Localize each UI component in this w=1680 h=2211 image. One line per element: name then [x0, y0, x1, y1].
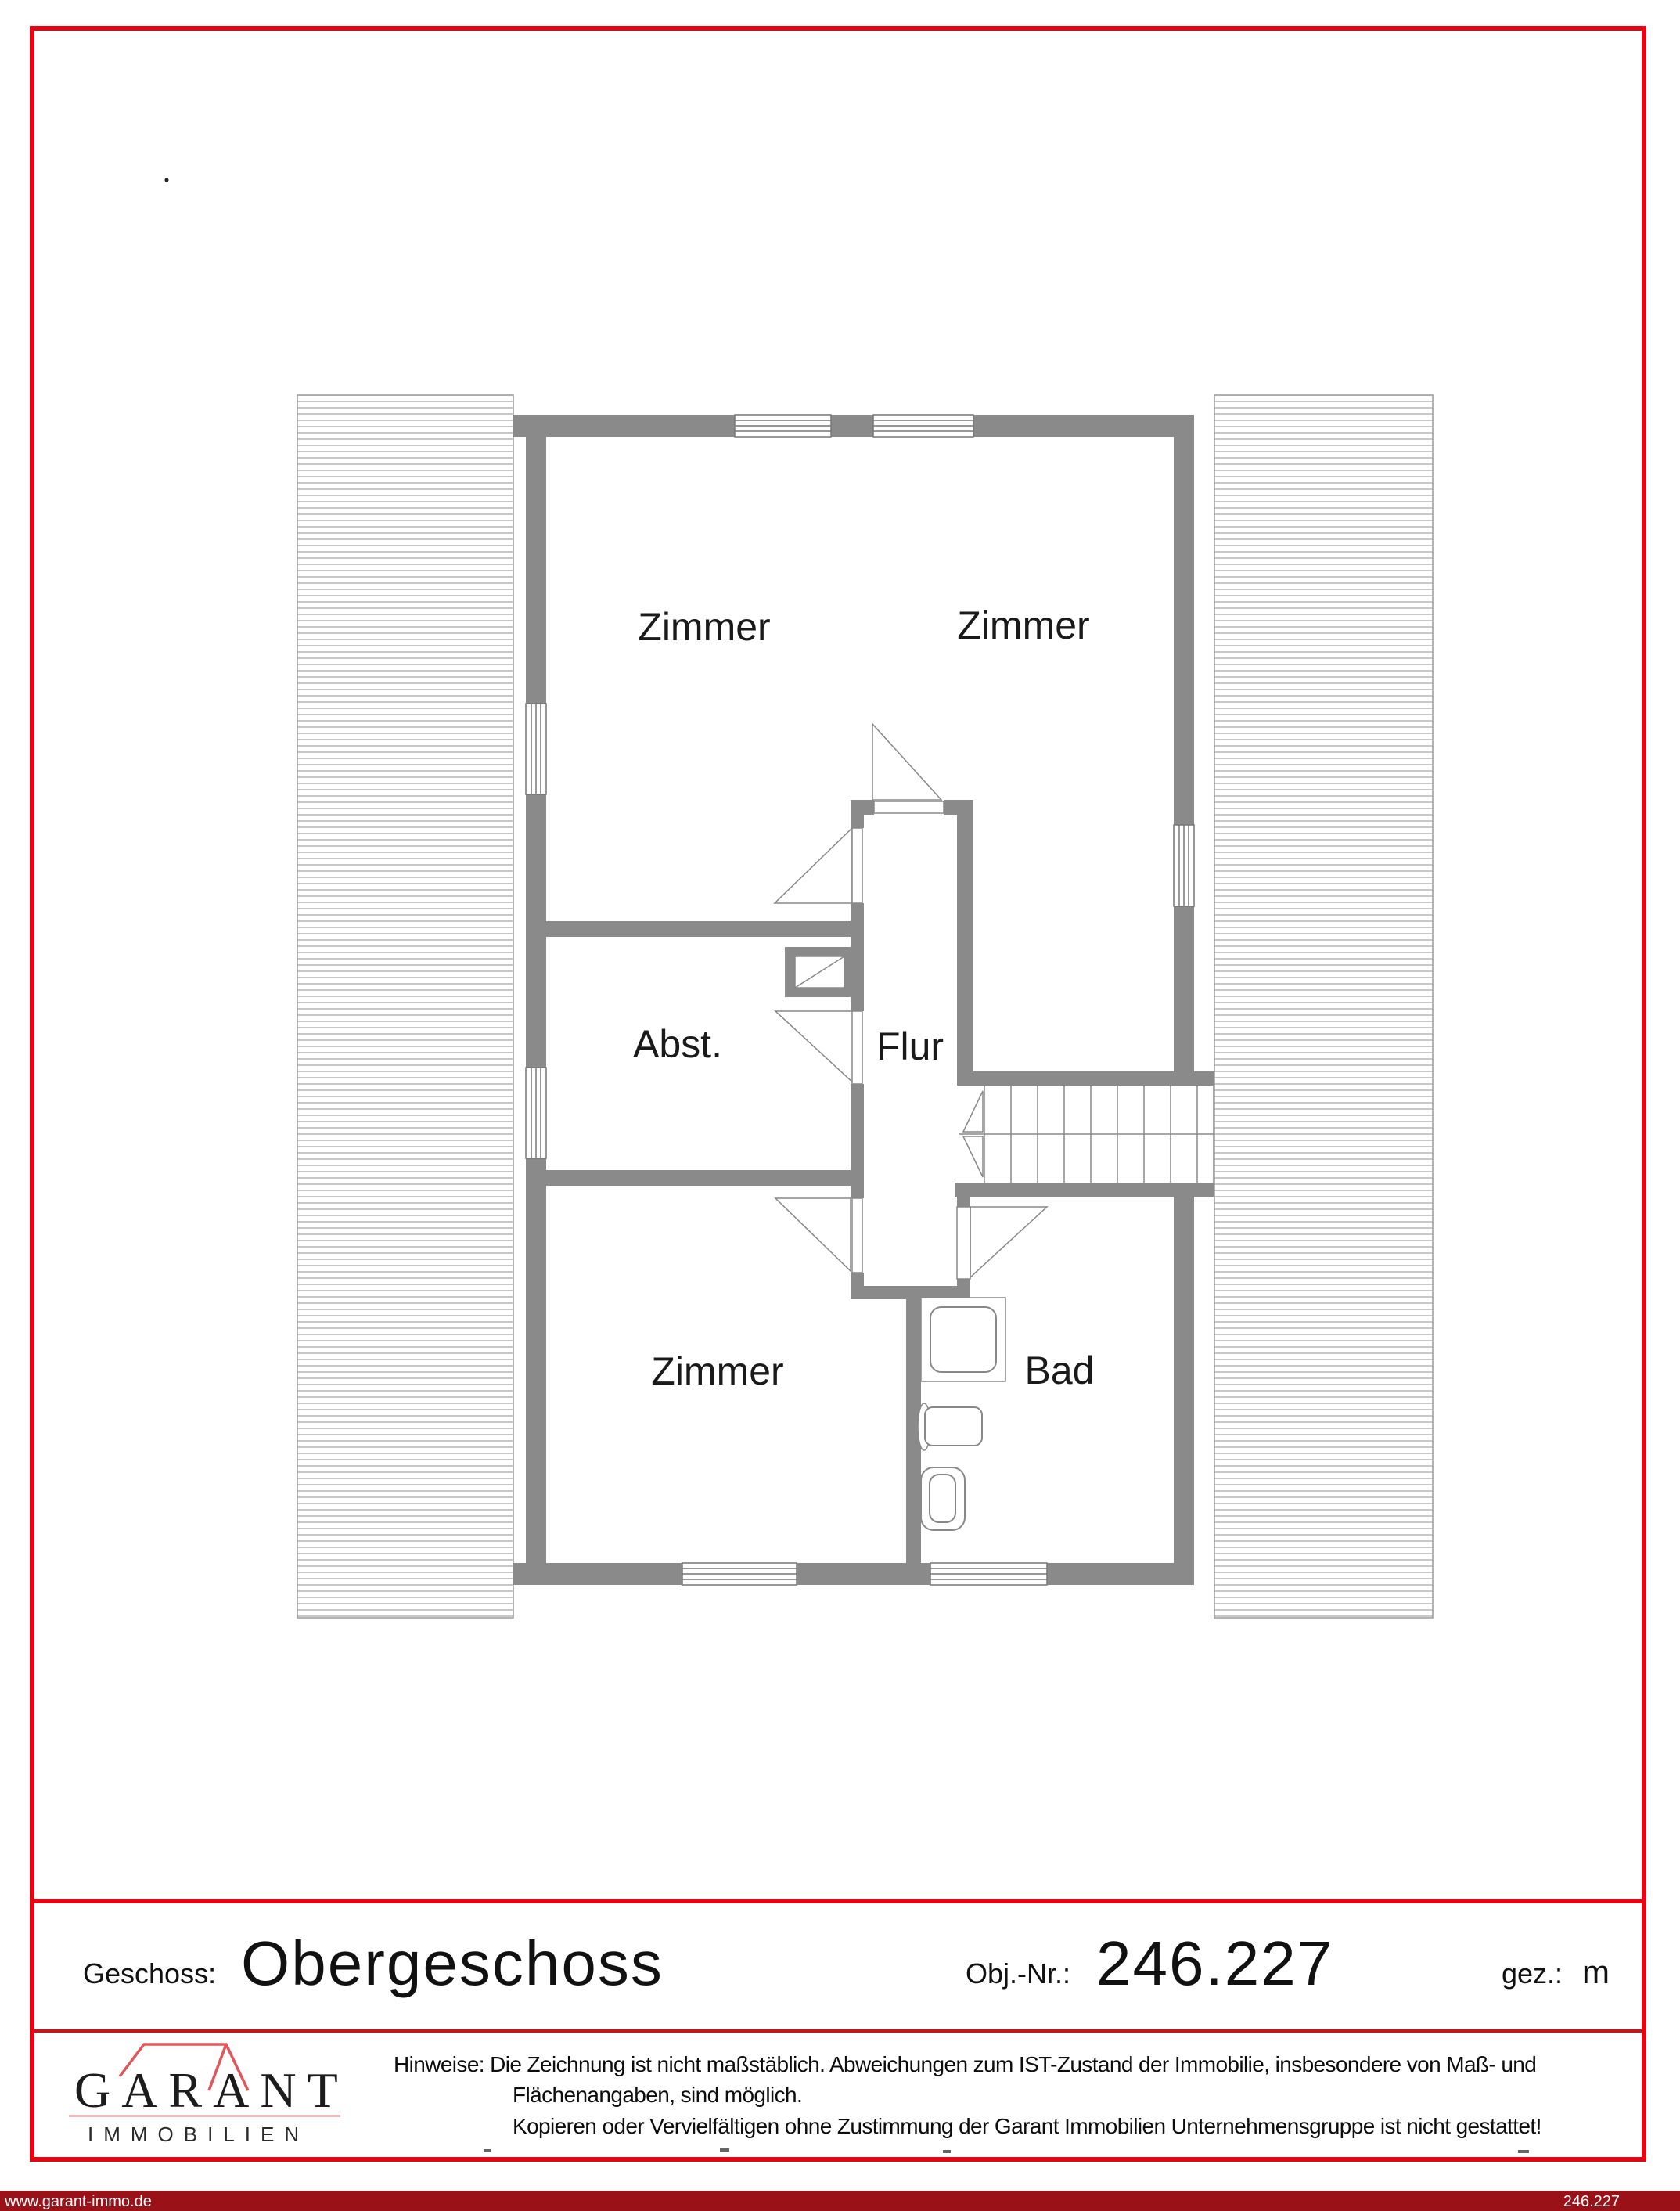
stairs-symbol [959, 1086, 1214, 1183]
floor-plan-drawing: Zimmer Zimmer Abst. Flur Zimmer Bad [0, 0, 1680, 2211]
website-url-text: www.garant-immo.de [5, 2193, 152, 2211]
footer-divider-line-bottom [34, 2029, 1644, 2033]
roof-hatch-areas [297, 395, 1433, 1618]
gez-label: gez.: [1502, 1960, 1563, 1988]
gez-value: m [1582, 1956, 1610, 1989]
wall-right-upper [1174, 415, 1194, 1086]
bad-door-stub-lower [957, 1279, 970, 1299]
geschoss-label: Geschoss: [83, 1960, 216, 1988]
stairs-wall-bottom [955, 1183, 1214, 1197]
stairs-wall-top [957, 1071, 1214, 1086]
footer-divider-line-top [34, 1899, 1644, 1903]
obj-nr-label: Obj.-Nr.: [966, 1960, 1070, 1988]
sink-symbol [925, 1407, 982, 1446]
shower-tray [930, 1307, 996, 1372]
roof-hatch-right [1214, 395, 1433, 1618]
interior-walls [546, 800, 1214, 1563]
stairs-turn-upper [963, 1091, 983, 1132]
toilet-bowl [930, 1475, 955, 1522]
object-number-text: 246.227 [1563, 2193, 1620, 2211]
flur-wall-right [957, 800, 973, 1086]
window-right-1 [1174, 825, 1194, 906]
room-label-zimmer-top-right: Zimmer [957, 603, 1089, 647]
flur-wall-top-seg1 [851, 800, 874, 815]
room-label-zimmer-bottom: Zimmer [651, 1349, 783, 1393]
notice-line-2: Flächenangaben, sind möglich. [513, 2084, 802, 2106]
wall-right-lower [1174, 1197, 1194, 1585]
room-label-abst: Abst. [633, 1022, 722, 1066]
stairs-turn-lower [963, 1136, 983, 1177]
notice-line-3: Kopieren oder Vervielfältigen ohne Zusti… [513, 2116, 1541, 2137]
wall-top [513, 415, 1194, 437]
wall-abst-zimmer [546, 1170, 864, 1186]
door-leaf-bad [957, 1207, 970, 1279]
wall-left [526, 415, 546, 1585]
bathroom-fixtures [918, 1298, 1005, 1530]
clipped-text-fragment [720, 2148, 729, 2152]
stray-dot-mark [165, 178, 169, 182]
flur-wall-left-seg3 [851, 1084, 864, 1198]
door-leaf-abst [852, 1011, 862, 1084]
door-leaf-flur-top [874, 801, 944, 813]
roof-hatch-left [297, 395, 513, 1618]
room-label-flur: Flur [876, 1024, 944, 1068]
room-label-bad: Bad [1025, 1349, 1095, 1392]
wall-zimmer-abst [546, 921, 851, 937]
window-bottom-1 [682, 1563, 797, 1585]
window-bottom-2 [930, 1563, 1047, 1585]
bottom-status-bar: www.garant-immo.de 246.227 [0, 2191, 1680, 2211]
window-top-1 [735, 415, 831, 437]
wall-bottom [513, 1563, 1194, 1585]
geschoss-value: Obergeschoss [241, 1932, 664, 1995]
logo-brand-text: GARANT [74, 2065, 349, 2116]
door-leaf-zimmer-topleft [852, 828, 862, 903]
clipped-text-fragment [484, 2149, 491, 2152]
floor-plan-page: Zimmer Zimmer Abst. Flur Zimmer Bad Gesc… [0, 0, 1680, 2211]
window-left-1 [526, 704, 546, 794]
door-swing-flur-abst [775, 1011, 854, 1084]
door-leaf-zimmer-bottom [852, 1198, 862, 1273]
window-top-2 [873, 415, 973, 437]
clipped-text-fragment [943, 2150, 951, 2153]
door-swing-bad [970, 1207, 1047, 1277]
clipped-text-fragment [1518, 2150, 1529, 2153]
bad-door-stub-upper [957, 1197, 970, 1207]
room-label-zimmer-top-left: Zimmer [638, 605, 770, 649]
notice-line-1: Hinweise: Die Zeichnung ist nicht maßstä… [394, 2054, 1536, 2076]
logo-brand-subtext: IMMOBILIEN [88, 2124, 309, 2144]
obj-nr-value: 246.227 [1096, 1932, 1333, 1995]
window-left-2 [526, 1068, 546, 1158]
door-swing-flur-zimmer-topleft [775, 828, 852, 903]
door-swing-flur-zimmer-bottom [775, 1198, 851, 1271]
chimney-symbol [785, 947, 854, 997]
door-swing-flur-zimmer-topright [872, 724, 941, 800]
